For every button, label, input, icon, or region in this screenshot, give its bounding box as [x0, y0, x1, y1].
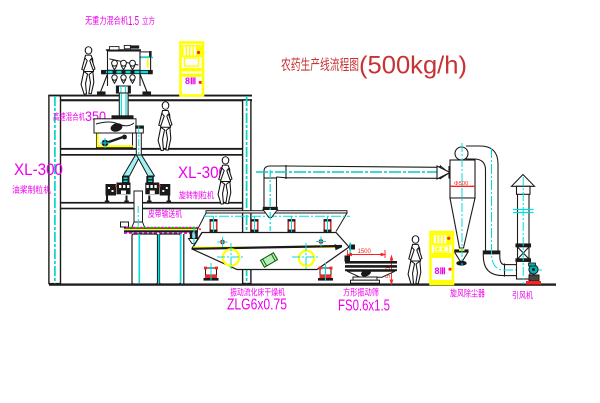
svg-text:XL-300: XL-300 — [14, 161, 63, 179]
svg-text:旋风除尘器: 旋风除尘器 — [450, 288, 485, 299]
svg-text:FS0.6x1.5: FS0.6x1.5 — [338, 298, 390, 315]
svg-text:1.5: 1.5 — [128, 13, 139, 28]
svg-text:ZLG6x0.75: ZLG6x0.75 — [227, 297, 287, 314]
svg-text:高速混合机: 高速混合机 — [53, 111, 85, 122]
svg-text:无重力混合机: 无重力混合机 — [85, 15, 128, 27]
svg-text:(500kg/h): (500kg/h) — [359, 52, 467, 80]
svg-text:8Ⅲ: 8Ⅲ — [185, 76, 196, 86]
svg-text:油桨制粒机: 油桨制粒机 — [12, 184, 51, 195]
svg-text:引风机: 引风机 — [512, 290, 533, 301]
svg-text:农药生产线流程图: 农药生产线流程图 — [281, 57, 359, 74]
svg-text:皮带输送机: 皮带输送机 — [148, 208, 182, 219]
svg-text:8Ⅲ: 8Ⅲ — [435, 266, 446, 276]
svg-text:Φ500: Φ500 — [454, 181, 468, 187]
svg-text:立方: 立方 — [142, 15, 155, 26]
svg-text:方形振动筛: 方形振动筛 — [343, 287, 379, 298]
svg-text:旋转制粒机: 旋转制粒机 — [179, 190, 214, 201]
svg-text:1500: 1500 — [358, 249, 372, 255]
